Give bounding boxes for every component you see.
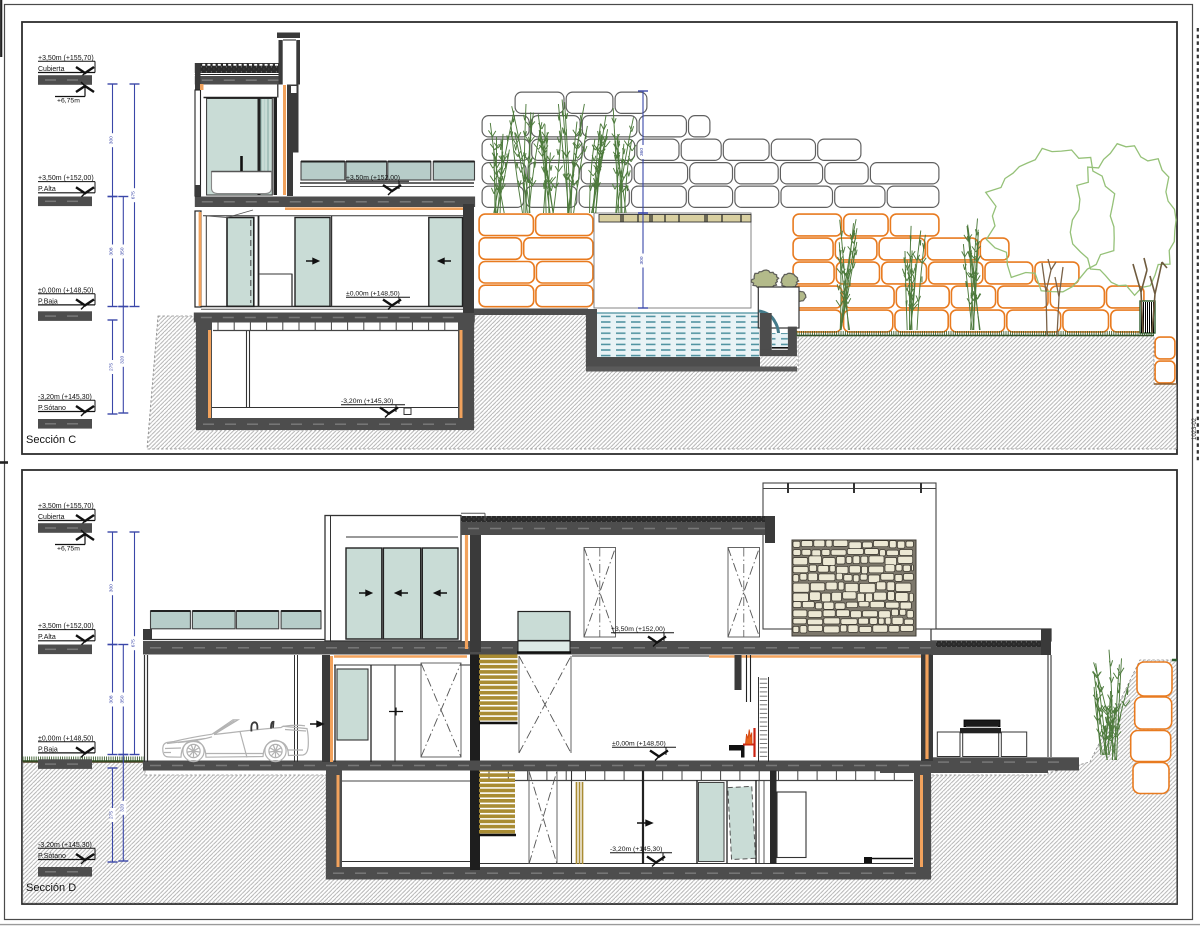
svg-text:P.Sótano: P.Sótano: [38, 853, 66, 860]
svg-text:675: 675: [131, 191, 137, 199]
svg-text:300: 300: [639, 256, 645, 264]
svg-text:320: 320: [119, 355, 125, 363]
svg-text:1023-02: 1023-02: [1192, 417, 1198, 440]
svg-text:275: 275: [109, 363, 115, 371]
svg-text:350: 350: [119, 247, 125, 255]
svg-text:300: 300: [109, 136, 115, 144]
svg-text:308: 308: [109, 247, 115, 255]
svg-text:Cubierta: Cubierta: [38, 66, 65, 73]
svg-text:Sección C: Sección C: [26, 434, 76, 446]
svg-text:P.Sótano: P.Sótano: [38, 405, 66, 412]
svg-text:+6,75m: +6,75m: [57, 98, 80, 105]
svg-text:±0,00m (+148,50): ±0,00m (+148,50): [612, 741, 666, 748]
svg-text:275: 275: [109, 811, 115, 819]
svg-text:360: 360: [639, 148, 645, 156]
svg-text:+3,50m (+152,00): +3,50m (+152,00): [346, 175, 400, 182]
svg-text:320: 320: [119, 803, 125, 811]
svg-text:350: 350: [119, 695, 125, 703]
svg-text:P.Alta: P.Alta: [38, 186, 56, 193]
svg-text:-3,20m (+145,30): -3,20m (+145,30): [341, 398, 393, 405]
svg-text:+6,75m: +6,75m: [57, 546, 80, 553]
svg-text:+3,50m (+152,00): +3,50m (+152,00): [611, 626, 665, 633]
svg-text:675: 675: [131, 639, 137, 647]
svg-text:P.Baja: P.Baja: [38, 746, 58, 753]
svg-text:-3,20m (+145,30): -3,20m (+145,30): [610, 846, 662, 853]
svg-text:±0,00m (+148,50): ±0,00m (+148,50): [346, 291, 400, 298]
svg-text:300: 300: [109, 584, 115, 592]
svg-text:308: 308: [109, 695, 115, 703]
svg-text:Sección D: Sección D: [26, 882, 76, 894]
svg-text:Cubierta: Cubierta: [38, 514, 65, 521]
svg-text:P.Alta: P.Alta: [38, 634, 56, 641]
svg-text:P.Baja: P.Baja: [38, 298, 58, 305]
